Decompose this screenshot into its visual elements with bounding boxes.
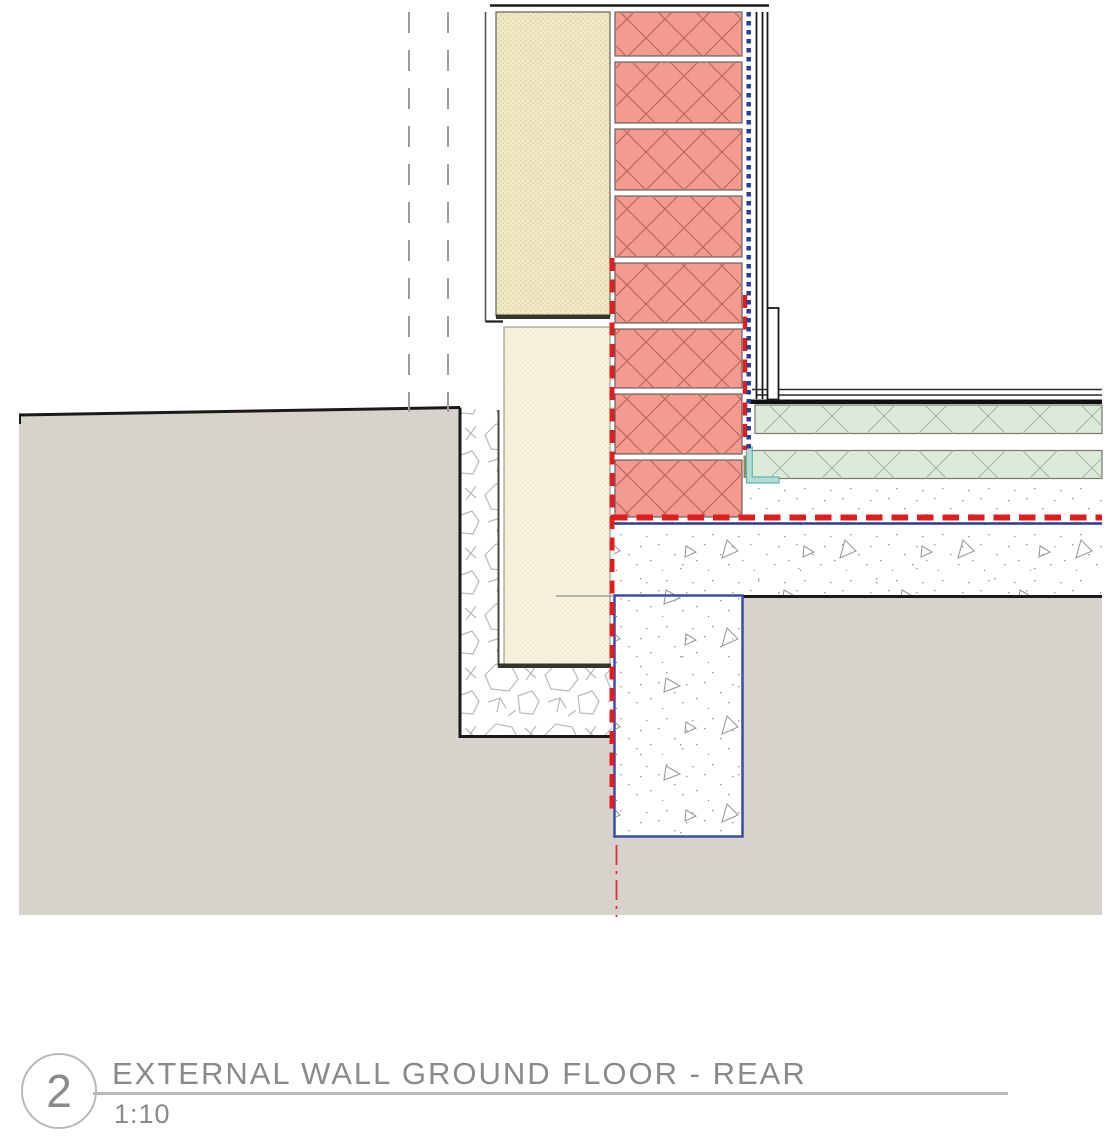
- detail-section-graphic: [0, 0, 1120, 1145]
- concrete-foundation: [615, 596, 743, 837]
- external-insulation-below-dpc: [498, 327, 611, 668]
- floor-finish-lines: [750, 390, 1102, 402]
- boundary-dashed-lines: [409, 12, 448, 412]
- concrete-floor-slab: [614, 524, 1102, 596]
- architectural-detail-drawing: 2 EXTERNAL WALL GROUND FLOOR - REAR 1:10: [0, 0, 1120, 1145]
- internal-wall-finish-lines: [757, 12, 768, 399]
- floor-insulation-lower: [752, 451, 1102, 479]
- skirting-board: [768, 308, 779, 400]
- brick-wall: [615, 12, 742, 517]
- sand-blinding-layer: [746, 479, 1102, 515]
- floor-insulation-upper: [755, 405, 1102, 434]
- external-insulation-upper: [496, 12, 610, 319]
